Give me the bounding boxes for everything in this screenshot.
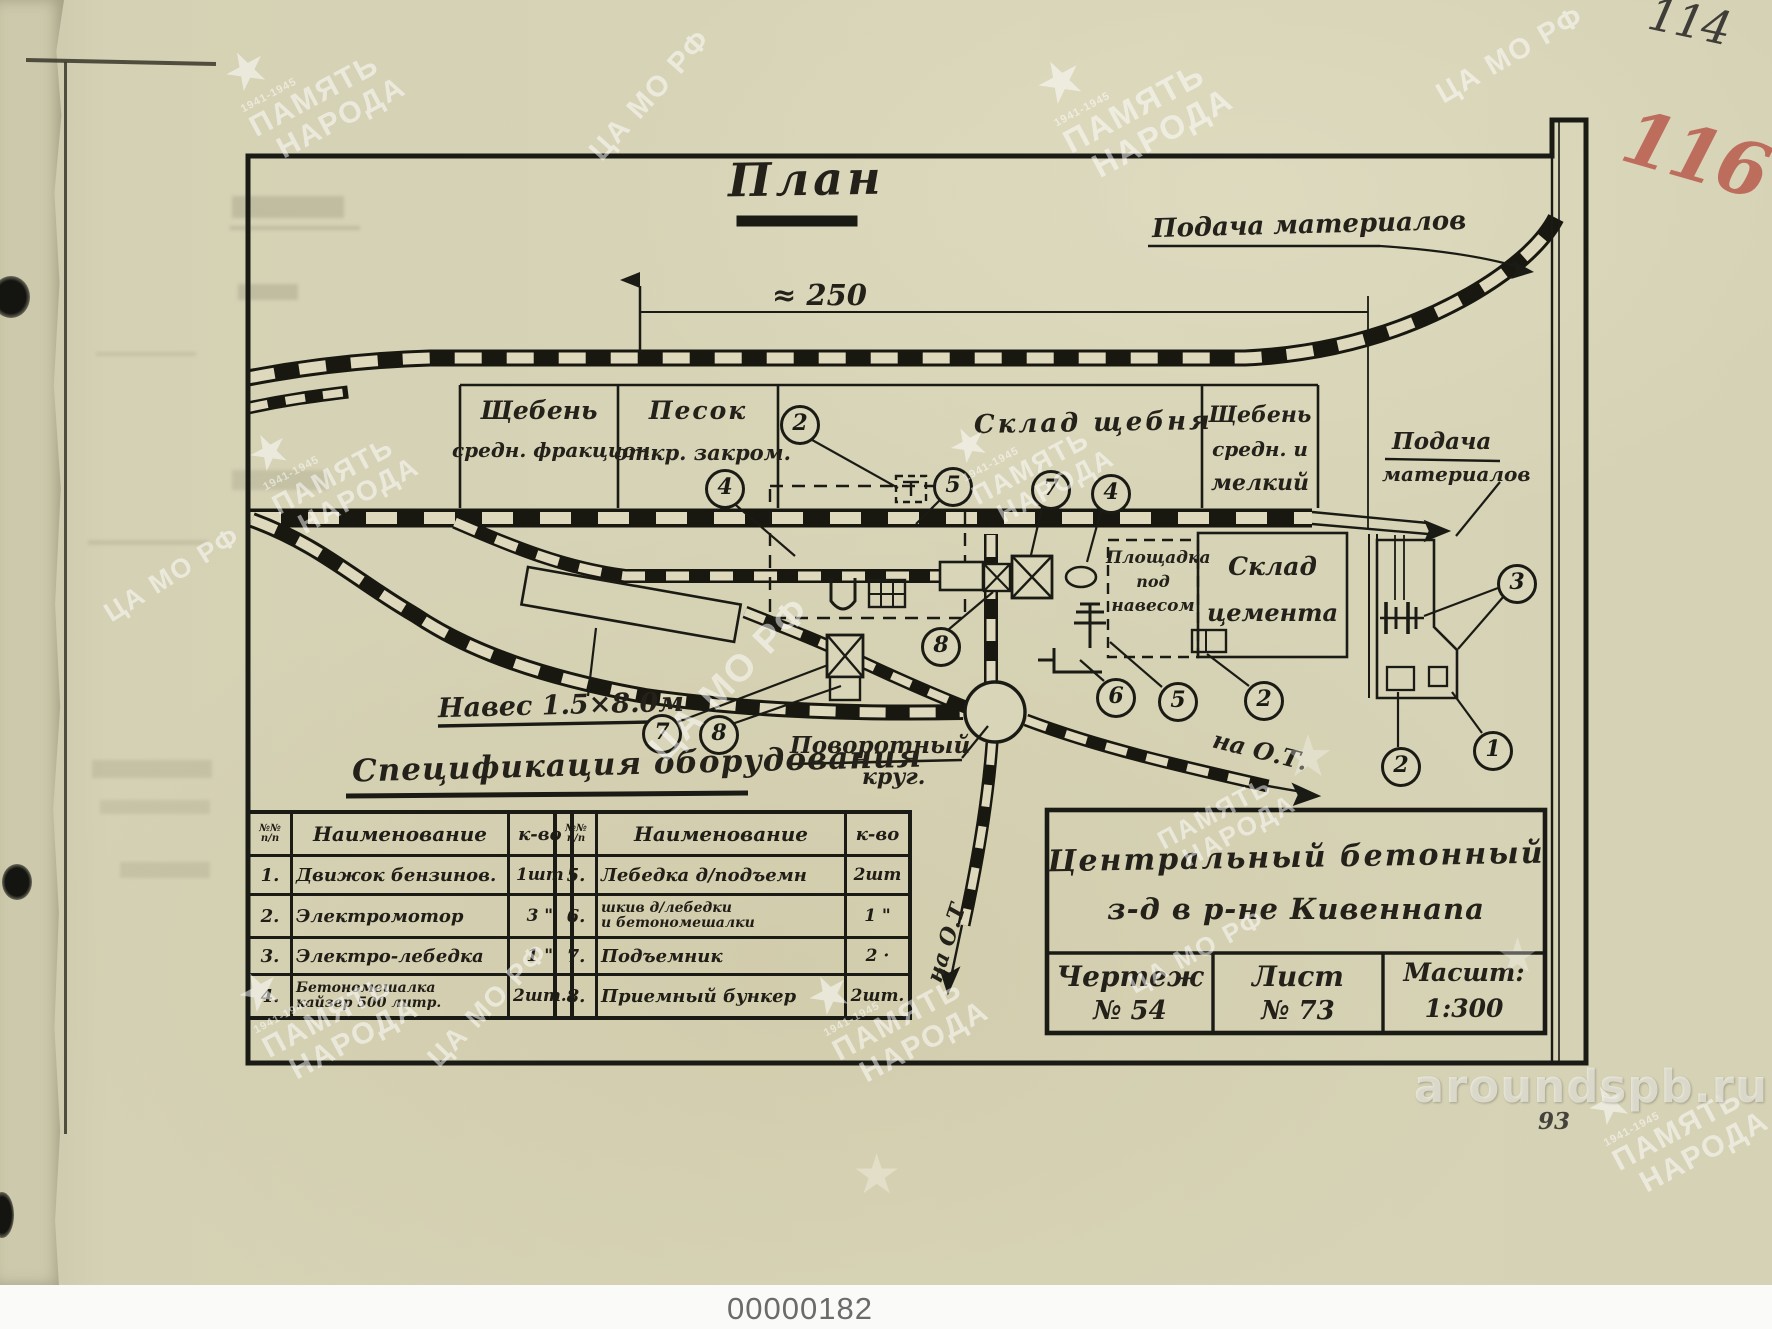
spec-row-name: шкив д/лебедкии бетономешалки (597, 895, 846, 938)
callout-circle-6: 6 (1096, 678, 1136, 718)
site-watermark: aroundspb.ru (1414, 1060, 1768, 1113)
area-sand-line2: откр. закром. (614, 440, 782, 465)
spec-header-num: №№п/п (248, 812, 292, 856)
spec-header-qty: к-во (846, 812, 911, 856)
callout-circle-8: 8 (921, 627, 961, 667)
titleblock-drawing-num: № 54 (1047, 996, 1213, 1026)
area-gravel-fine-line3: мелкий (1202, 470, 1318, 496)
spec-row-num: 6. (555, 895, 597, 938)
spec-header-name: Наименование (597, 812, 846, 856)
scan-id: 00000182 (0, 1291, 1600, 1327)
area-sand-line1: Песок (618, 396, 778, 425)
area-gravel-fine-line1: Щебень (1202, 402, 1318, 428)
titleblock-line2: з-д в р-не Кивеннапа (1047, 892, 1545, 926)
spec-header-num: №№п/п (555, 812, 597, 856)
callout-circle-5: 5 (1158, 682, 1198, 722)
spec-row-num: 2. (248, 895, 292, 938)
spec-row-num: 8. (555, 975, 597, 1019)
spec-row-num: 7. (555, 938, 597, 975)
feed-right-line1: Подача (1392, 428, 1491, 455)
spec-row-qty: 2шт (846, 856, 911, 895)
area-shed-line2: под (1106, 572, 1200, 591)
callout-circle-3: 3 (1497, 564, 1537, 604)
callout-circle-1: 1 (1473, 731, 1513, 771)
titleblock-scale-value: 1:300 (1383, 994, 1545, 1023)
area-gravel-medium-line1: Щебень (460, 396, 618, 425)
area-cement-line2: цемента (1198, 598, 1347, 627)
callout-circle-2: 2 (780, 405, 820, 445)
spec-row-name: Подъемник (597, 938, 846, 975)
spec-row-num: 1. (248, 856, 292, 895)
star-watermark-icon: ★ (852, 1142, 901, 1206)
star-watermark-icon: ★ (1282, 722, 1334, 790)
dimension-label: ≈ 250 (772, 278, 867, 312)
callout-circle-2: 2 (1244, 681, 1284, 721)
titleblock-sheet-num: № 73 (1213, 996, 1383, 1026)
star-watermark-icon: ★ (1496, 928, 1539, 984)
callout-circle-2: 2 (1381, 747, 1421, 787)
area-shed-line3: навесом (1106, 596, 1200, 616)
area-gravel-medium-line2: средн. фракцион. (452, 438, 626, 462)
spec-row-num: 5. (555, 856, 597, 895)
spec-row-name: Движок бензинов. (292, 856, 509, 895)
spec-row-name: Лебедка д/подъемн (597, 856, 846, 895)
plan-title: План (728, 151, 885, 208)
scanned-blueprint-page: План ≈ 250 Подача материалов Щебень сред… (0, 0, 1772, 1329)
area-cement-line1: Склад (1198, 552, 1347, 581)
spec-header-name: Наименование (292, 812, 509, 856)
feed-right-line2: материалов (1382, 462, 1530, 486)
area-shed-line1: Площадка (1106, 548, 1200, 568)
callout-circle-4: 4 (705, 469, 745, 509)
area-gravel-fine-line2: средн. и (1202, 437, 1318, 461)
titleblock-sheet-label: Лист (1213, 960, 1383, 993)
